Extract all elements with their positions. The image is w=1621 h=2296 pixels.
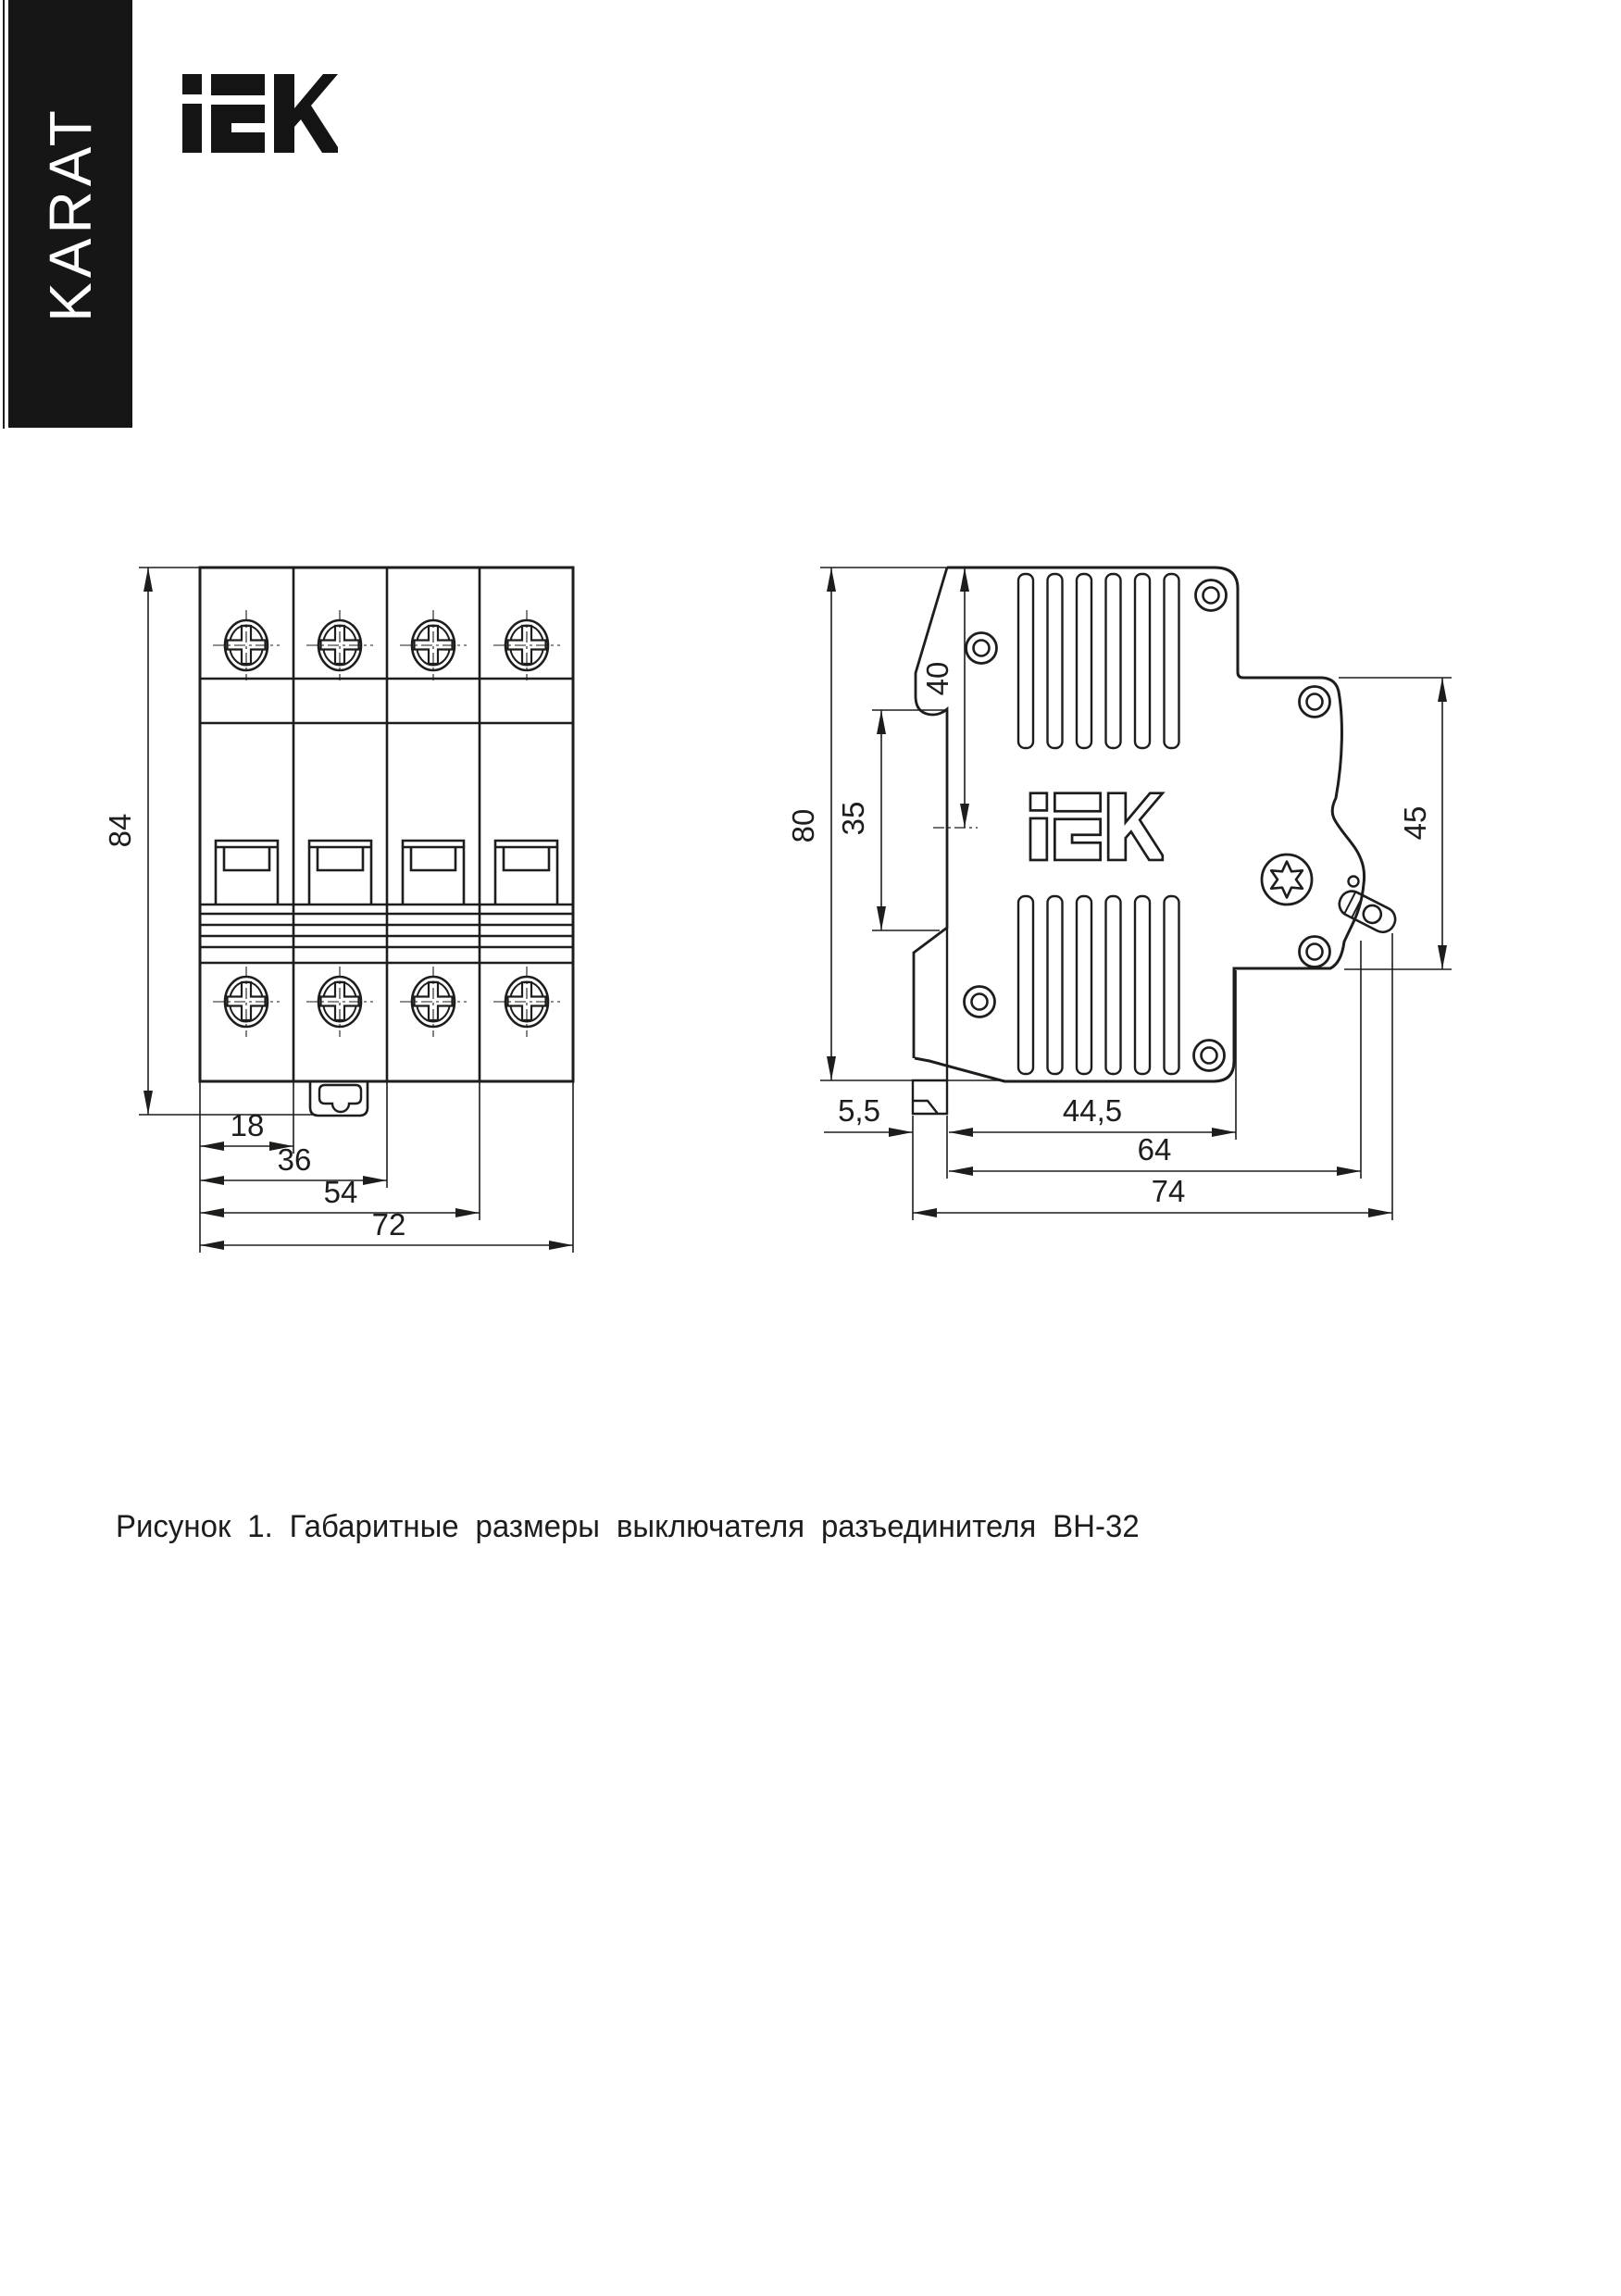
din-clip-front xyxy=(310,1081,368,1116)
dim-text-40: 40 xyxy=(920,662,954,696)
dim-text-64: 64 xyxy=(1138,1132,1172,1167)
dim-text-54: 54 xyxy=(324,1175,358,1209)
dim-text-44-5: 44,5 xyxy=(1063,1093,1122,1128)
iek-logo-embossed xyxy=(1030,793,1163,860)
dim-text-35: 35 xyxy=(836,802,870,836)
technical-drawing: 84 18 36 54 72 xyxy=(0,0,1621,2296)
dim-45: 45 xyxy=(1339,678,1452,969)
dim-text-72: 72 xyxy=(372,1207,406,1242)
dim-40: 40 xyxy=(920,568,978,828)
dim-35: 35 xyxy=(836,710,947,930)
vent-slots-top xyxy=(1018,574,1179,748)
dim-widths: 18 36 54 72 xyxy=(200,1081,573,1253)
torx-screw-icon xyxy=(1262,855,1312,905)
dim-text-84: 84 xyxy=(103,814,137,848)
dim-depths: 5,5 44,5 64 74 xyxy=(824,933,1392,1220)
figure-caption: Рисунок 1. Габаритные размеры выключател… xyxy=(116,1509,1140,1545)
dim-text-18: 18 xyxy=(231,1108,265,1142)
dim-text-45: 45 xyxy=(1398,806,1432,841)
dim-height-84: 84 xyxy=(103,568,317,1115)
dim-text-36: 36 xyxy=(278,1142,312,1177)
front-view: 84 18 36 54 72 xyxy=(103,568,573,1253)
vent-slots-bottom xyxy=(1018,896,1179,1074)
dim-text-5-5: 5,5 xyxy=(838,1093,880,1128)
catalog-page: KARAT xyxy=(0,0,1621,2296)
dim-text-80: 80 xyxy=(786,809,820,843)
side-view: 80 40 35 45 xyxy=(786,568,1452,1220)
dim-text-74: 74 xyxy=(1152,1174,1186,1208)
iek-logo xyxy=(182,74,338,153)
latch-tab xyxy=(1335,887,1399,936)
